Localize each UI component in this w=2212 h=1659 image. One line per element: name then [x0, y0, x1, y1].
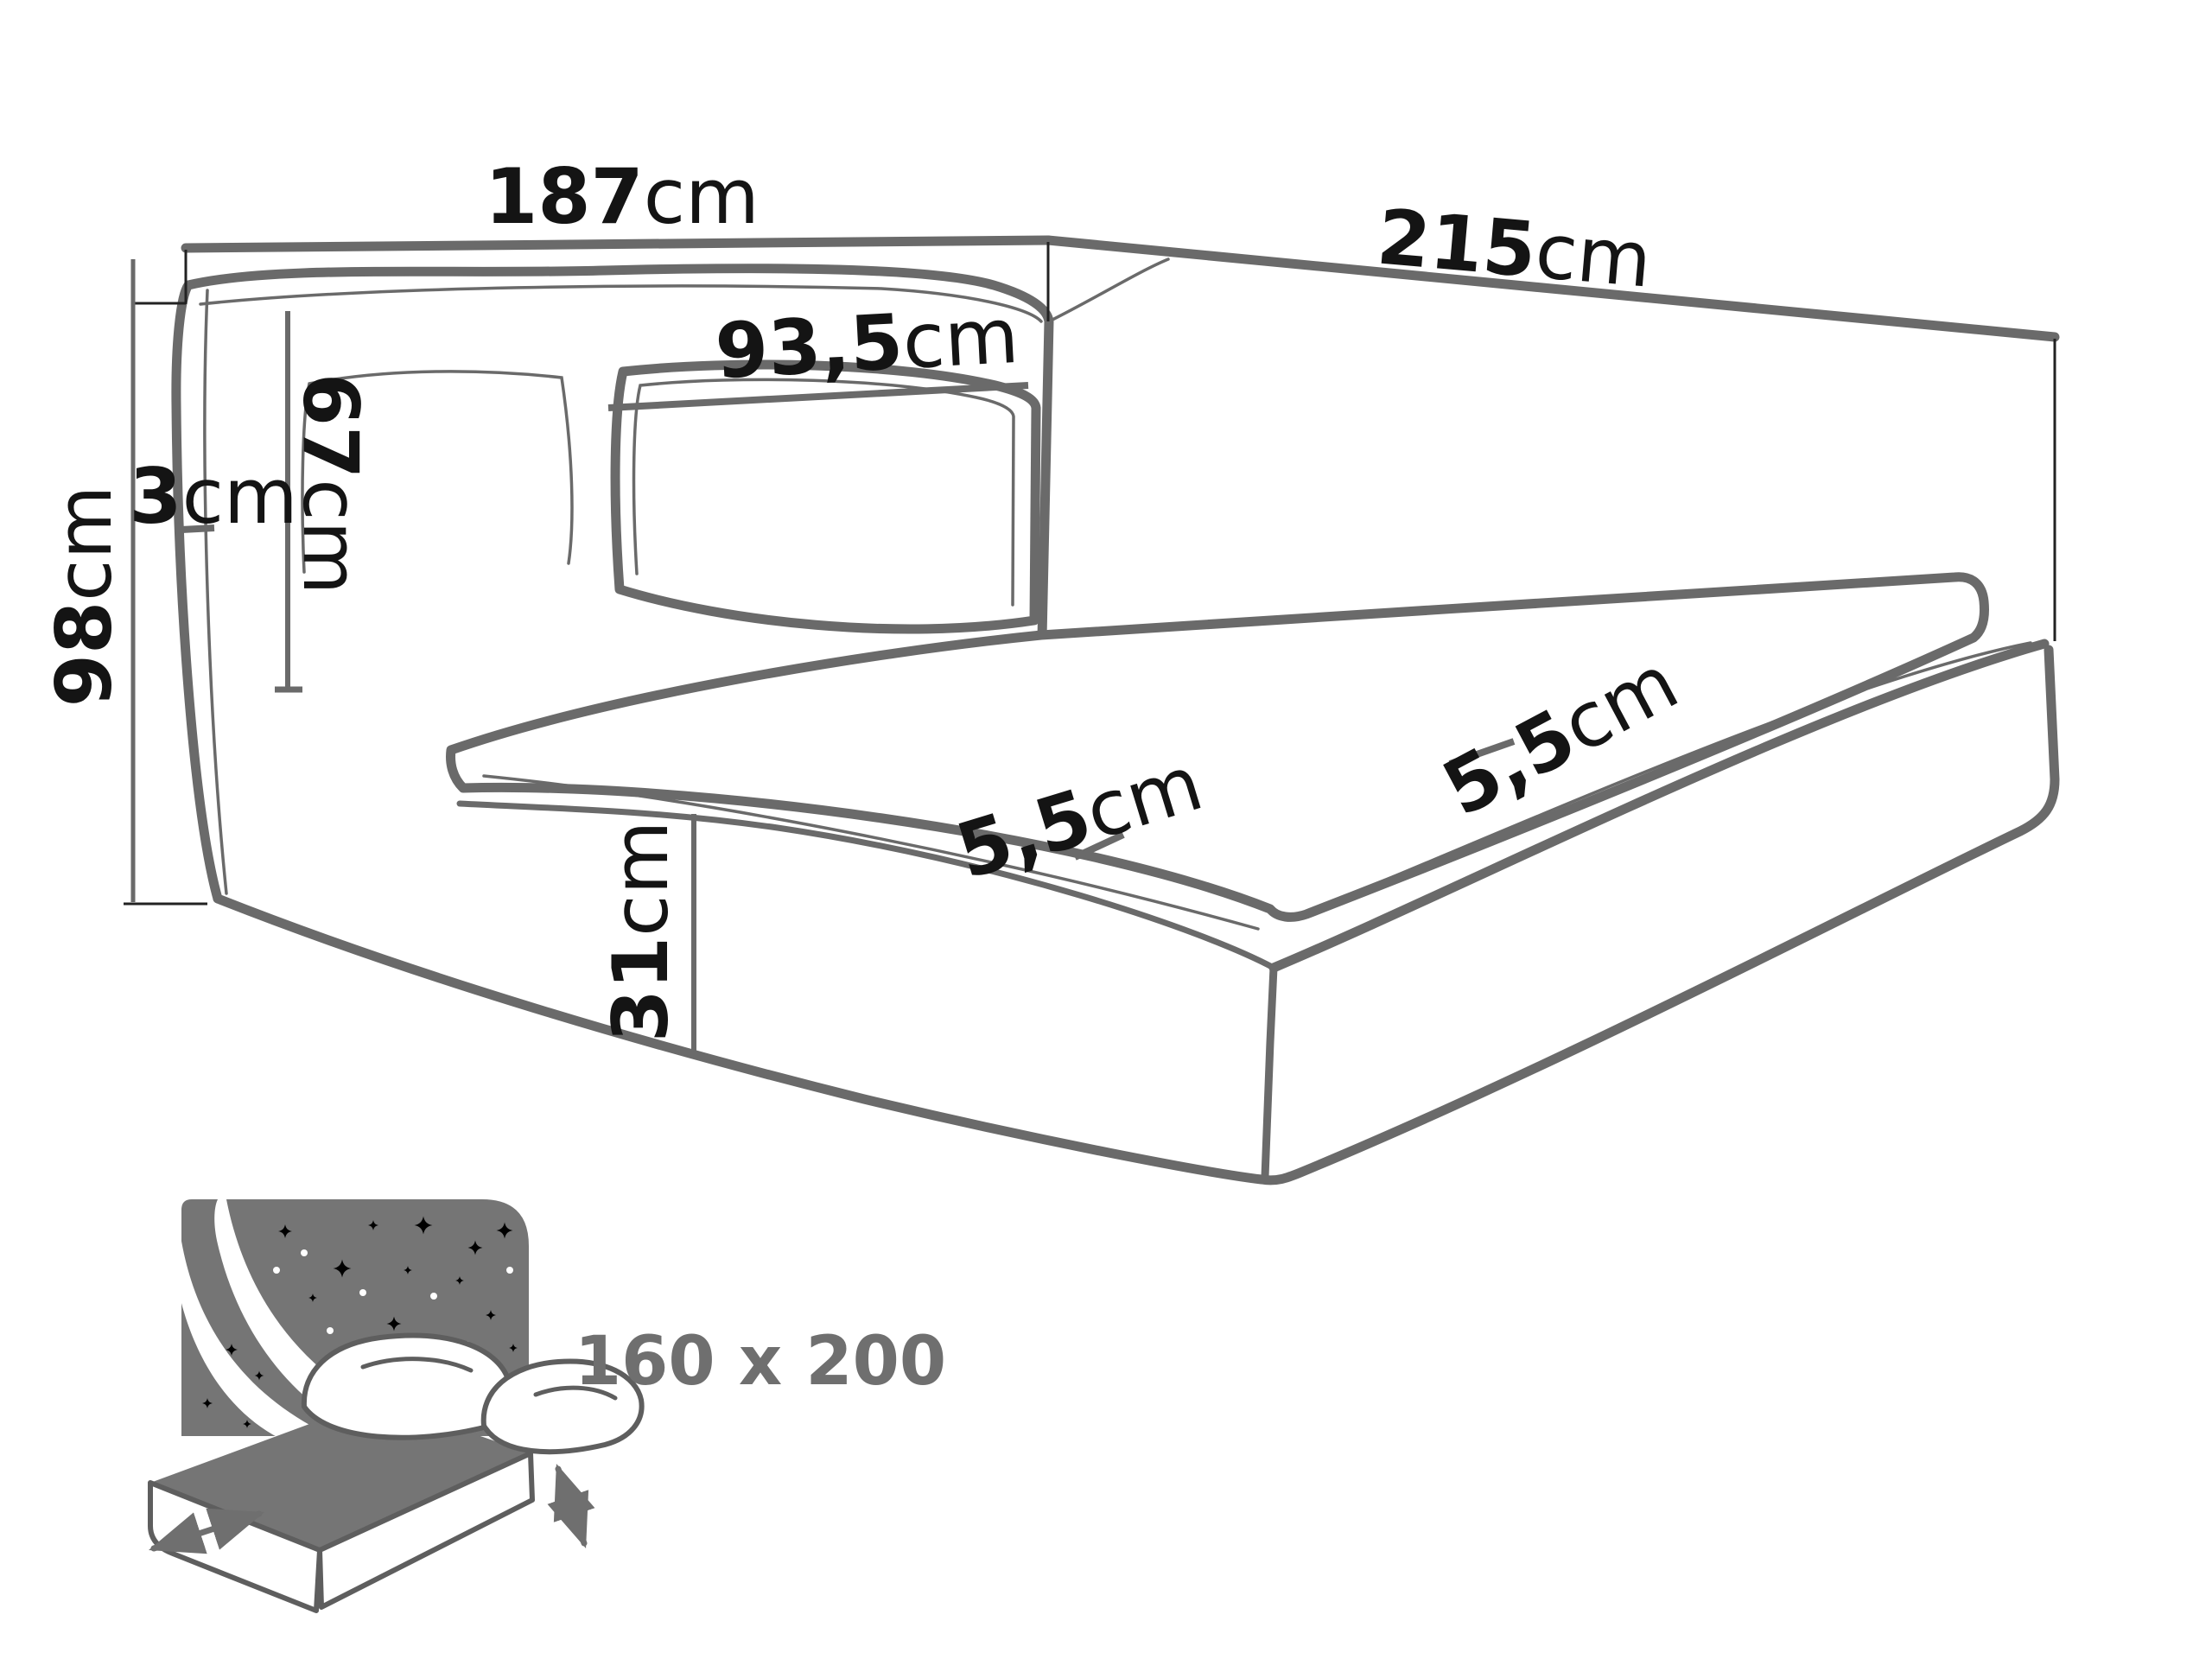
- label-wing-thickness: 3cm: [129, 452, 297, 541]
- label-panel-width: 93,5cm: [713, 291, 1020, 396]
- icon-pillow-left: [304, 1336, 511, 1438]
- label-frame-height: 31cm: [596, 821, 685, 1043]
- frame-foot-edge: [1265, 968, 1274, 1177]
- label-cushion-height: 67cm: [286, 373, 375, 595]
- bed-drawing: [176, 246, 2055, 1180]
- mattress-size-label: 160 x 200: [575, 1323, 946, 1401]
- label-headboard-width: 187cm: [485, 152, 760, 241]
- mattress-size-icon: 160 x 200: [150, 1199, 946, 1611]
- diagram-canvas: 187cm 215cm 93,5cm 67cm 3cm 98cm 31cm 5,…: [0, 0, 2212, 1659]
- bed-dimension-diagram: 187cm 215cm 93,5cm 67cm 3cm 98cm 31cm 5,…: [0, 0, 2212, 1659]
- dim-line-187: [186, 240, 1048, 248]
- label-total-height: 98cm: [40, 486, 129, 708]
- icon-length-arrow: [558, 1469, 584, 1543]
